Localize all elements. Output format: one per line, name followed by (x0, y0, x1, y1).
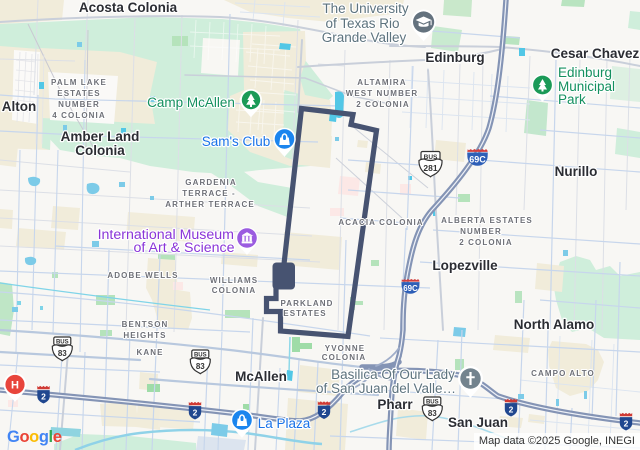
svg-text:GARDENIA: GARDENIA (185, 178, 236, 187)
svg-text:H: H (11, 380, 19, 392)
svg-text:2 COLONIA: 2 COLONIA (356, 100, 409, 109)
svg-text:COLONIA: COLONIA (212, 286, 257, 295)
svg-text:Edinburg: Edinburg (558, 65, 612, 80)
svg-text:San Juan: San Juan (448, 415, 508, 430)
svg-text:of San Juan del Valle…: of San Juan del Valle… (316, 381, 456, 396)
svg-text:Nurillo: Nurillo (555, 164, 598, 179)
svg-text:NUMBER: NUMBER (460, 227, 502, 236)
svg-text:Cesar Chavez: Cesar Chavez (551, 46, 640, 61)
svg-text:Lopezville: Lopezville (432, 258, 498, 273)
svg-text:83: 83 (58, 349, 67, 358)
svg-text:WEST NUMBER: WEST NUMBER (346, 89, 419, 98)
svg-text:ACACIA COLONIA: ACACIA COLONIA (338, 218, 423, 227)
svg-text:2: 2 (41, 392, 46, 402)
svg-text:McAllen: McAllen (235, 369, 287, 384)
svg-text:69C: 69C (403, 284, 418, 293)
svg-text:WILLIAMS: WILLIAMS (210, 276, 258, 285)
svg-text:of Texas Rio: of Texas Rio (325, 16, 399, 31)
svg-text:Pharr: Pharr (377, 397, 413, 412)
svg-text:Amber Land: Amber Land (61, 129, 140, 144)
svg-text:KANE: KANE (136, 348, 163, 357)
svg-text:Camp McAllen: Camp McAllen (147, 95, 235, 110)
svg-text:69C: 69C (469, 155, 486, 165)
svg-text:Acosta Colonia: Acosta Colonia (79, 0, 178, 15)
svg-text:Grande Valley: Grande Valley (322, 30, 407, 45)
svg-text:PALM LAKE: PALM LAKE (51, 78, 107, 87)
svg-text:ALTAMIRA: ALTAMIRA (357, 78, 406, 87)
svg-text:Park: Park (558, 92, 586, 107)
svg-text:ALBERTA ESTATES: ALBERTA ESTATES (441, 216, 533, 225)
svg-text:Alton: Alton (2, 99, 37, 114)
svg-text:NUMBER: NUMBER (58, 100, 100, 109)
svg-text:Colonia: Colonia (75, 143, 125, 158)
svg-text:ARTHER TERRACE: ARTHER TERRACE (165, 200, 255, 209)
svg-text:North Alamo: North Alamo (514, 317, 595, 332)
svg-text:TERRACE -: TERRACE - (182, 189, 235, 198)
svg-text:CAMPO ALTO: CAMPO ALTO (531, 369, 595, 378)
svg-text:The University: The University (322, 1, 409, 16)
svg-text:YVONNE: YVONNE (325, 344, 365, 353)
svg-text:BUS: BUS (56, 340, 69, 346)
svg-text:Edinburg: Edinburg (425, 50, 484, 65)
svg-text:PARKLAND: PARKLAND (280, 299, 333, 308)
svg-text:COLONIA: COLONIA (322, 353, 367, 362)
svg-text:Basilica Of Our Lady: Basilica Of Our Lady (331, 367, 455, 382)
svg-text:281: 281 (423, 163, 437, 173)
svg-text:La Plaza: La Plaza (258, 416, 311, 431)
svg-text:2 COLONIA: 2 COLONIA (459, 238, 512, 247)
svg-text:of Art & Science: of Art & Science (134, 240, 235, 256)
svg-text:ESTATES: ESTATES (283, 309, 326, 318)
svg-text:ADOBE WELLS: ADOBE WELLS (107, 271, 178, 280)
svg-text:ESTATES: ESTATES (57, 89, 100, 98)
svg-text:4 COLONIA: 4 COLONIA (52, 111, 105, 120)
svg-text:BENTSON: BENTSON (122, 320, 169, 329)
svg-text:HEIGHTS: HEIGHTS (123, 331, 166, 340)
svg-text:Sam's Club: Sam's Club (202, 134, 271, 149)
